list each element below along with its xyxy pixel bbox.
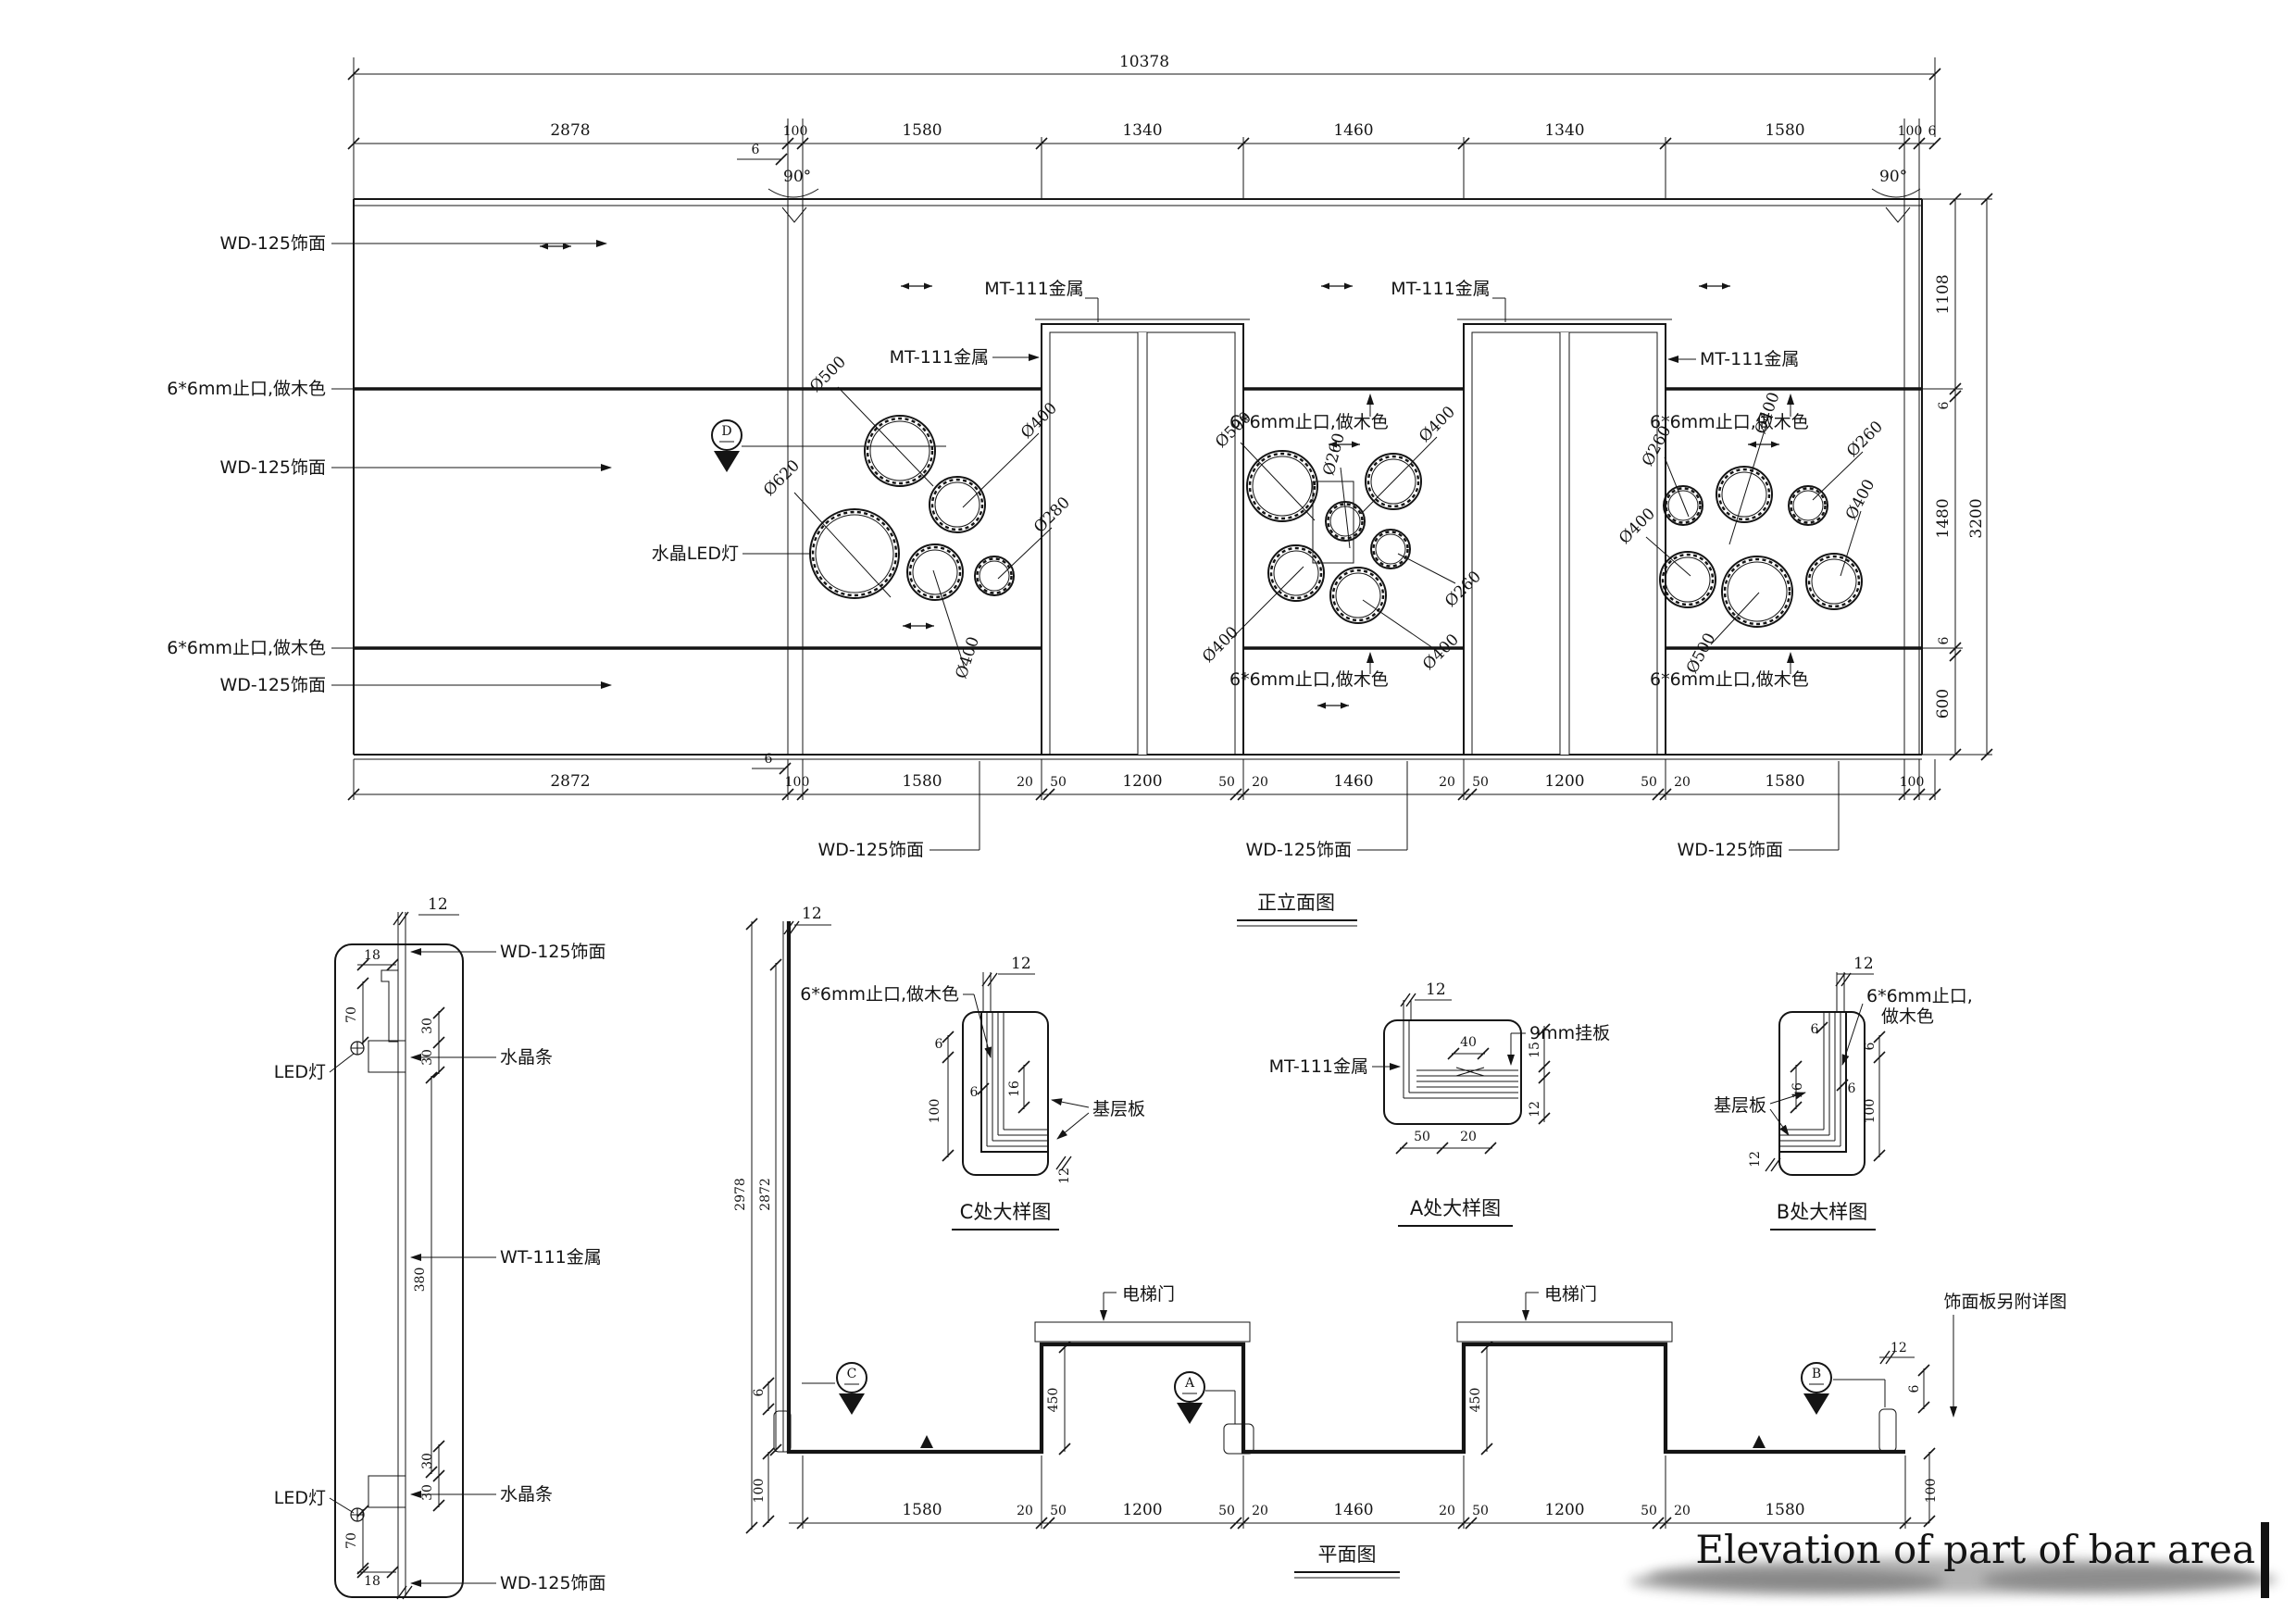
plan-b-0: 1580 (902, 1501, 942, 1519)
angle-label: 90° (1879, 168, 1907, 186)
elevator-door-2 (1457, 1322, 1672, 1342)
dim-100: 100 (928, 1099, 942, 1124)
dim-30: 30 (420, 1018, 435, 1034)
dim-top-row: 2878 100 1580 1340 1460 1340 1580 100 6 (348, 121, 1940, 199)
break-mark (1401, 993, 1416, 1006)
marker-letter: A (1184, 1376, 1195, 1391)
dim-bot-7: 50 (1218, 775, 1235, 790)
plan-b-6: 1460 (1333, 1501, 1373, 1519)
dim-16: 16 (1007, 1081, 1022, 1097)
led-symbol (351, 1042, 364, 1055)
dim-12: 12 (1057, 1168, 1072, 1184)
plan-b-4: 50 (1218, 1504, 1235, 1518)
detail-title: C处大样图 (960, 1201, 1052, 1223)
plan-dim-6: 6 (1907, 1384, 1922, 1393)
dia-label: Ø280 (1030, 493, 1074, 537)
elevation-view: 10378 2878 100 1580 1340 1460 1340 1580 … (167, 53, 1992, 926)
dim-6: 6 (1863, 1042, 1878, 1050)
plan-b-1: 20 (1017, 1504, 1033, 1518)
joint-arrow (1699, 283, 1730, 290)
finish-note-label: 饰面板另附详图 (1943, 1292, 2066, 1312)
dia-label: Ø400 (1199, 623, 1242, 667)
dia-label: Ø400 (953, 634, 983, 681)
dim-top-5: 1340 (1544, 121, 1584, 140)
dim-6: 6 (935, 1037, 943, 1052)
mt111-label: MT-111金属 (890, 347, 989, 368)
dia-label: Ø260 (1843, 418, 1887, 461)
cad-sheet: 10378 2878 100 1580 1340 1460 1340 1580 … (0, 0, 2296, 1624)
plan-b-8: 50 (1472, 1504, 1489, 1518)
dim-top-8: 6 (1928, 124, 1937, 139)
sheet-title: Elevation of part of bar area (1695, 1527, 2255, 1572)
lamp-group-2: Ø500 Ø400 Ø260 Ø260 Ø400 Ø400 6*6mm止口,做木… (1199, 394, 1485, 690)
joint-arrow (903, 623, 934, 630)
dim-bot-1: 6 (765, 752, 773, 767)
dim-right-4: 6 (1937, 636, 1952, 644)
plan-b-9: 1200 (1544, 1501, 1584, 1519)
dim-bot-3: 1580 (902, 772, 942, 791)
plan-title: 平面图 (1294, 1543, 1400, 1578)
zhikou-label: 6*6mm止口,做木色 (800, 984, 959, 1005)
joint-arrow (1317, 703, 1349, 709)
dim-top-3: 1340 (1122, 121, 1162, 140)
detail-a: 12 MT-111金属 40 9mm挂板 15 12 50 20 A处大样图 (1269, 981, 1611, 1226)
dia-label: Ø400 (1419, 631, 1463, 674)
dim-right-2: 1480 (1934, 498, 1953, 538)
dia-label: Ø620 (760, 456, 804, 500)
dim-bot-6: 1200 (1122, 772, 1162, 791)
plan-b-7: 20 (1439, 1504, 1455, 1518)
detail-title: A处大样图 (1410, 1197, 1501, 1219)
title-bar (2261, 1522, 2269, 1598)
detail-b: 12 6*6mm止口, 做木色 6 16 6 6 100 基层板 12 B处大样… (1714, 955, 1973, 1230)
wt111-label: WT-111金属 (500, 1247, 602, 1268)
dim-bot-11: 50 (1472, 775, 1489, 790)
plan-dim-450: 450 (1468, 1388, 1483, 1413)
elevation-title: 正立面图 (1237, 892, 1357, 926)
mt111-label: MT-111金属 (1391, 279, 1490, 299)
six-note: 6 (752, 143, 760, 157)
wd125-label: WD-125饰面 (817, 840, 924, 860)
dim-bot-12: 1200 (1544, 772, 1584, 791)
base-board-label: 基层板 (1714, 1095, 1766, 1116)
zhikou-label: 6*6mm止口,做木色 (1650, 412, 1809, 432)
break-mark (1766, 1158, 1780, 1171)
wall-triangle (920, 1435, 933, 1448)
marker-letter: C (847, 1367, 857, 1381)
dim-40: 40 (1460, 1035, 1477, 1050)
plan-marker-b: B (1802, 1363, 1885, 1415)
dim-right-1: 6 (1937, 401, 1952, 409)
break-mark (393, 912, 408, 925)
led-symbol (351, 1508, 364, 1521)
dim-30: 30 (420, 1453, 435, 1469)
sheet-title-block: Elevation of part of bar area (1629, 1522, 2277, 1598)
elevator-door-label: 电梯门 (1122, 1284, 1175, 1305)
dim-total: 10378 (1119, 53, 1169, 71)
crystal-strip-label: 水晶条 (500, 1484, 553, 1505)
dim-6: 6 (1811, 1022, 1819, 1037)
wd125-label: WD-125饰面 (500, 942, 606, 962)
dim-bot-10: 20 (1439, 775, 1455, 790)
dim-6: 6 (1848, 1081, 1856, 1096)
dim-right-3: 3200 (1967, 498, 1986, 538)
view-title: 正立面图 (1257, 892, 1335, 914)
dia-label: Ø400 (1017, 399, 1061, 443)
angle-note-left: 6 90° (737, 143, 818, 222)
dim-70: 70 (344, 1532, 359, 1549)
zhikou-l2: 做木色 (1881, 1006, 1934, 1027)
dim-bot-9: 1460 (1333, 772, 1373, 791)
dim-b-14: 20 (1674, 775, 1691, 790)
dim-right-0: 1108 (1934, 274, 1953, 314)
plan-dim-100: 100 (1924, 1479, 1939, 1504)
dim-380: 380 (413, 1268, 428, 1293)
plan-dim-v-outer: 2978 (733, 1178, 748, 1211)
break-mark (1056, 1156, 1071, 1169)
dim-6: 6 (970, 1085, 979, 1100)
mt111-label: MT-111金属 (984, 279, 1083, 299)
mt111-label: MT-111金属 (1269, 1056, 1368, 1077)
dim-12: 12 (1528, 1101, 1542, 1118)
dim-right-5: 600 (1934, 689, 1953, 718)
detail-c: 12 6*6mm止口,做木色 6 100 6 16 基层板 12 C处大样图 (800, 955, 1145, 1230)
zhikou-l1: 6*6mm止口, (1866, 986, 1973, 1006)
dim-top-4: 1460 (1333, 121, 1373, 140)
wd125-label: WD-125饰面 (219, 457, 326, 478)
zhikou-label: 6*6mm止口,做木色 (1229, 669, 1389, 690)
dim-bot-4: 20 (1017, 775, 1033, 790)
joint-arrow (901, 283, 932, 290)
zhikou-label: 6*6mm止口,做木色 (167, 638, 326, 658)
dim-top-0: 2878 (550, 121, 590, 140)
wd125-label: WD-125饰面 (219, 233, 326, 254)
plan-b-5: 20 (1252, 1504, 1268, 1518)
dim-top-6: 1580 (1765, 121, 1804, 140)
dim-b-16: 100 (1900, 775, 1925, 790)
dim-100: 100 (1863, 1099, 1878, 1124)
angle-note-right: 90° (1872, 168, 1920, 222)
marker-triangle (714, 451, 740, 472)
dim-top-2: 1580 (902, 121, 942, 140)
zhikou-label: 6*6mm止口,做木色 (1650, 669, 1809, 690)
dim-top-1: 100 (783, 124, 808, 139)
wd125-label: WD-125饰面 (500, 1573, 606, 1593)
wd125-label: WD-125饰面 (1245, 840, 1352, 860)
plan-b-12: 1580 (1765, 1501, 1804, 1519)
joint-arrow (1748, 442, 1779, 448)
marker-letter: D (721, 424, 731, 439)
plan-marker-c: C (802, 1363, 867, 1415)
dia-label: Ø400 (1842, 476, 1878, 522)
crystal-led-label: 水晶LED灯 (652, 543, 739, 564)
column-2 (1457, 319, 1672, 755)
lamp-group-1: Ø500 Ø400 Ø620 Ø280 Ø400 水晶LED灯 (652, 353, 1074, 681)
dim-18: 18 (364, 1574, 381, 1589)
dim-12: 12 (1748, 1151, 1763, 1168)
plan-b-2: 50 (1050, 1504, 1067, 1518)
column-1 (1035, 319, 1250, 755)
break-mark (1836, 973, 1851, 986)
plan-dim-450: 450 (1046, 1388, 1061, 1413)
base-board-label: 基层板 (1092, 1099, 1145, 1119)
led-label: LED灯 (274, 1488, 326, 1508)
dim-15: 15 (1528, 1042, 1542, 1058)
plan-b-3: 1200 (1122, 1501, 1162, 1519)
elevator-door-1 (1035, 1322, 1250, 1342)
dim-bot-8: 20 (1252, 775, 1268, 790)
plan-b-10: 50 (1641, 1504, 1657, 1518)
led-label: LED灯 (274, 1062, 326, 1082)
plan-dim-12: 12 (802, 905, 822, 923)
detail-title: B处大样图 (1777, 1201, 1867, 1223)
plan-dim-6: 6 (752, 1388, 767, 1396)
section-marker-d: D (712, 420, 946, 472)
dim-70: 70 (344, 1006, 359, 1023)
wd125-label: WD-125饰面 (219, 675, 326, 695)
dia-label: Ø400 (1416, 403, 1459, 446)
dim-bot-5: 50 (1050, 775, 1067, 790)
plan-dim-v-inner: 2872 (758, 1178, 773, 1211)
dim-top-7: 100 (1898, 124, 1923, 139)
plan-dim-bottom: 1580 20 50 1200 50 20 1460 20 50 1200 50… (789, 1455, 1929, 1529)
brush-stroke (1629, 1568, 1944, 1594)
dim-12: 12 (1011, 955, 1031, 973)
dia-label: Ø400 (1616, 505, 1659, 548)
drawing-canvas: 10378 2878 100 1580 1340 1460 1340 1580 … (0, 0, 2296, 1624)
dim-bot-2: 100 (785, 775, 810, 790)
dim-right-column: 1108 6 1480 3200 6 600 (1922, 194, 1992, 760)
break-mark (784, 921, 799, 934)
dim-bot-0: 2872 (550, 772, 590, 791)
dim-b-15: 1580 (1765, 772, 1804, 791)
joint-arrow (1321, 283, 1353, 290)
crystal-strip-label: 水晶条 (500, 1047, 553, 1068)
dim-30: 30 (420, 1484, 435, 1501)
dim-50: 50 (1414, 1130, 1430, 1144)
wd125-label: WD-125饰面 (1677, 840, 1783, 860)
dim-20: 20 (1460, 1130, 1477, 1144)
dim-12: 12 (1853, 955, 1874, 973)
wall-section-detail: 12 18 70 30 30 LED灯 水晶条 WD-125饰面 380 WT-… (274, 895, 606, 1599)
dim-b-13: 50 (1641, 775, 1657, 790)
dia-label: Ø260 (1320, 431, 1349, 478)
plan-b-11: 20 (1674, 1504, 1691, 1518)
wall-triangle (1753, 1435, 1766, 1448)
mt111-label: MT-111金属 (1700, 349, 1799, 369)
view-title: 平面图 (1318, 1543, 1377, 1566)
elevator-door-label: 电梯门 (1544, 1284, 1597, 1305)
plan-dim-100: 100 (752, 1479, 767, 1504)
lamp-group-3: Ø260 Ø400 Ø260 Ø400 Ø400 Ø500 6*6mm止口,做木… (1616, 390, 1887, 690)
dim-12: 12 (428, 895, 448, 914)
left-callouts: WD-125饰面 6*6mm止口,做木色 WD-125饰面 6*6mm止口,做木… (167, 233, 611, 695)
zhikou-label: 6*6mm止口,做木色 (1229, 412, 1389, 432)
joint-arrow (540, 244, 571, 250)
marker-letter: B (1812, 1367, 1821, 1381)
zhikou-label: 6*6mm止口,做木色 (167, 379, 326, 399)
dim-12: 12 (1426, 981, 1446, 999)
break-mark (982, 973, 997, 986)
